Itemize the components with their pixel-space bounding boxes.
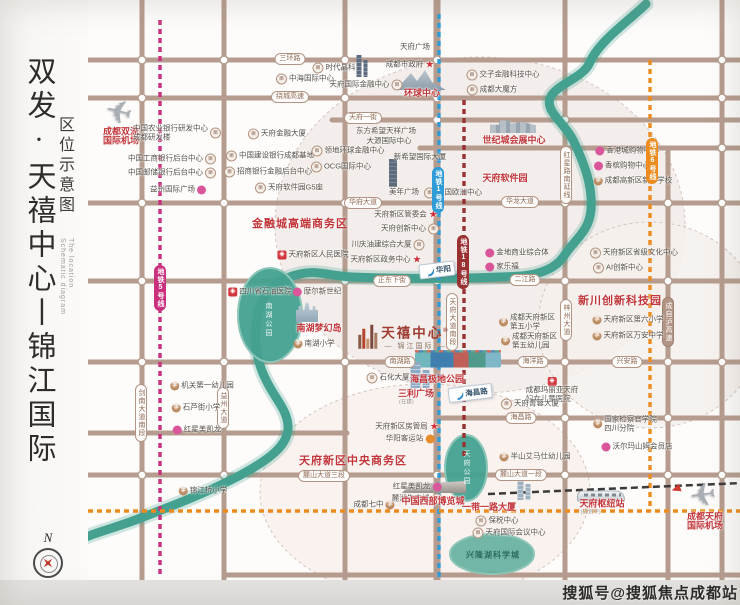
poi-text-line: 天府国际金融中心 bbox=[330, 81, 390, 90]
poi-text: 天府金融大厦 bbox=[261, 130, 306, 139]
compass-north-label: N bbox=[28, 530, 68, 546]
poi-label: ▦天府新区省级文化中心 bbox=[590, 248, 678, 259]
map-subtitle-en: The location Schematic diagram bbox=[58, 238, 74, 315]
school-icon: 学 bbox=[593, 316, 602, 325]
poi-text-line: 交子金融科技中心 bbox=[480, 71, 540, 80]
poi-text-line: 四川分院 bbox=[604, 424, 657, 433]
poi-text-line: 天府创新中心 bbox=[381, 225, 426, 234]
building-icon: ▦ bbox=[392, 80, 403, 91]
poi-text: 香槟购物中心 bbox=[605, 162, 650, 171]
poi-text: 成都七中 bbox=[354, 501, 384, 510]
building-icon: ▦ bbox=[210, 128, 221, 139]
poi-text: 华阳客运站 bbox=[386, 435, 424, 444]
poi-text: 一带一路大厦 bbox=[462, 503, 516, 512]
road-label: 海昌路 bbox=[506, 412, 537, 424]
poi-text-line: 一带一路大厦 bbox=[462, 503, 516, 512]
poi-text: OCG国际中心 bbox=[324, 163, 371, 172]
poi-text: 成都天府新区第五小学 bbox=[510, 314, 555, 331]
poi-text-line: 华阳客运站 bbox=[386, 435, 424, 444]
poi-label: 学成都高新区新华学校 bbox=[594, 177, 673, 186]
poi-text: 天府软件园G5座 bbox=[268, 184, 323, 193]
poi-text: 天府枢纽站(规划中) bbox=[579, 500, 624, 517]
poi-text: 天府国际金融中心 bbox=[330, 81, 390, 90]
poi-label: 天府新区政务中心★ bbox=[351, 256, 422, 265]
poi-text: 天府国际会议中心 bbox=[486, 529, 546, 538]
poi-text: 成都市政府 bbox=[386, 61, 424, 70]
poi-text-line: 国际机场 bbox=[687, 521, 723, 530]
park-label: 兴隆湖科学城 bbox=[466, 550, 520, 561]
logo-bar bbox=[370, 325, 373, 349]
poi-text-line: 第五小学 bbox=[510, 322, 555, 331]
logo-title: 天禧中心® bbox=[381, 324, 449, 341]
building-icon: ▦ bbox=[367, 373, 378, 384]
road-label: 南湖路 bbox=[385, 356, 416, 368]
poi-text: 石化大厦 bbox=[380, 374, 410, 383]
school-icon: 学 bbox=[593, 420, 602, 429]
poi-label: 成都天府国际机场 bbox=[687, 513, 723, 530]
poi-label: 天府新区管委会★ bbox=[374, 211, 437, 220]
metro-line-label: 地铁18号线 bbox=[457, 235, 469, 289]
school-icon: 学 bbox=[593, 332, 602, 341]
poi-label: ▦保税中心 bbox=[476, 516, 519, 527]
poi-text-line: 锦江桥小学 bbox=[190, 487, 228, 496]
poi-text: 中国工商银行后台中心 bbox=[128, 155, 203, 164]
poi-text-line: 天府新区第六小学 bbox=[604, 316, 664, 325]
poi-label: 川庆油建综合大厦▦ bbox=[352, 240, 425, 251]
station-name: 华阳 bbox=[435, 263, 451, 276]
shopping-icon bbox=[173, 426, 182, 435]
poi-text: 保税中心 bbox=[489, 517, 519, 526]
poi-text: 红星美凯龙 bbox=[184, 426, 222, 435]
poi-text: 天府新区房管局 bbox=[375, 423, 428, 432]
poi-label: ▦AI创新中心 bbox=[593, 263, 643, 274]
shopping-icon bbox=[293, 288, 302, 297]
school-icon: 学 bbox=[499, 318, 508, 327]
poi-text-line: 益州国际广场 bbox=[150, 186, 195, 195]
building-icon: ▦ bbox=[205, 154, 216, 165]
metro-station-sign: 海昌路 bbox=[447, 383, 492, 403]
poi-text: 天府新区省级文化中心 bbox=[603, 249, 678, 258]
road-label: 麓山大道三段 bbox=[298, 470, 350, 482]
building-icon: ▦ bbox=[473, 528, 484, 539]
poi-text-line: 成都七中 bbox=[354, 501, 384, 510]
poi-note: (规划中) bbox=[580, 508, 624, 517]
road-label: 兴安路 bbox=[612, 356, 643, 368]
school-icon: 学 bbox=[179, 487, 188, 496]
poi-text: 成都天府国际机场 bbox=[687, 513, 723, 530]
towers2-icon bbox=[517, 478, 532, 500]
poi-label: 红星美凯龙 bbox=[393, 483, 442, 492]
shopping-icon bbox=[602, 443, 611, 452]
tower-shape bbox=[364, 60, 368, 77]
towers-icon bbox=[356, 55, 369, 77]
poi-text-line: 时代晶科 bbox=[326, 64, 356, 73]
building-icon: ▦ bbox=[414, 240, 425, 251]
road-label: 成自泸高速 bbox=[662, 297, 674, 347]
map-label-layer: 三环路绕城高速天府一街华府大道华龙大道正东下街二江路南湖路海洋路兴安路海昌路麓山… bbox=[0, 0, 740, 580]
poi-text-line: 成都市政府 bbox=[386, 61, 424, 70]
hospital-icon: + bbox=[228, 288, 237, 297]
poi-label: +四川省石油医院 bbox=[228, 288, 292, 297]
building-icon: ▦ bbox=[467, 70, 478, 81]
poi-label: 红星美凯龙 bbox=[173, 426, 222, 435]
poi-text: AI创新中心 bbox=[606, 264, 643, 273]
school-icon: 学 bbox=[386, 501, 395, 510]
road-label: 梓州大道 bbox=[560, 299, 572, 341]
aquarium-icon bbox=[415, 353, 501, 368]
poi-text-line: 天府国际会议中心 bbox=[486, 529, 546, 538]
poi-text: 锦江桥小学 bbox=[190, 487, 228, 496]
poi-text-line: 半山艾马仕幼儿园 bbox=[511, 453, 571, 462]
wave-icon bbox=[450, 387, 466, 403]
metro-line-label: 地铁1号线 bbox=[432, 167, 444, 213]
building-icon: ▦ bbox=[226, 151, 237, 162]
poi-label: ▦时代晶科 bbox=[313, 63, 356, 74]
poi-label: 中国农业银行研发中心成都研发楼▦ bbox=[133, 125, 221, 142]
building-icon: ▦ bbox=[255, 183, 266, 194]
poi-label: 金地商业综合体 bbox=[485, 249, 549, 258]
poi-label: 东方希望天祥广场 bbox=[356, 127, 416, 136]
poi-label: 三利广场(在建) bbox=[398, 390, 434, 407]
bus-icon bbox=[425, 435, 434, 444]
road-label: 红星路南延线 bbox=[560, 146, 572, 204]
poi-label: ▦天府国际会议中心 bbox=[473, 528, 546, 539]
poi-label: 中国西部博览城 bbox=[401, 497, 464, 506]
cluster-icon bbox=[490, 119, 536, 133]
building-icon: ▦ bbox=[312, 146, 323, 157]
poi-text-line: 天府金融大厦 bbox=[261, 130, 306, 139]
shopping-icon bbox=[485, 263, 494, 272]
poi-text: 摩尔新世纪 bbox=[304, 288, 342, 297]
watermark-bar: 搜狐号@搜狐焦点成都站 bbox=[0, 580, 740, 605]
poi-text: 天府菁蓉大厦 bbox=[514, 400, 559, 409]
poi-label: 家乐福 bbox=[485, 263, 519, 272]
poi-text: 天府新区万安中学 bbox=[604, 332, 664, 341]
poi-label: 成都七中学 bbox=[354, 501, 395, 510]
road-label: 正东下街 bbox=[373, 275, 411, 287]
poi-text: 环球中心 bbox=[404, 89, 440, 98]
poi-text: 大源国际中心 bbox=[367, 137, 412, 146]
poi-label: 天府广场 bbox=[400, 43, 430, 52]
logo-bar bbox=[358, 335, 361, 349]
location-map-page: 三环路绕城高速天府一街华府大道华龙大道正东下街二江路南湖路海洋路兴安路海昌路麓山… bbox=[0, 0, 740, 605]
poi-text-line: 天府新区管委会 bbox=[374, 211, 427, 220]
poi-text-line: 红星美凯龙 bbox=[184, 426, 222, 435]
map-subtitle: 区位示意图 bbox=[52, 116, 76, 216]
poi-label: ▦天府软件园G5座 bbox=[255, 183, 323, 194]
poi-text: 石芦街小学 bbox=[183, 404, 221, 413]
road-label: 绕城高速 bbox=[271, 91, 309, 103]
shopping-icon bbox=[197, 186, 206, 195]
compass-icon bbox=[33, 548, 63, 578]
poi-label: ▦交子金融科技中心 bbox=[467, 70, 540, 81]
poi-label: 沃尔玛山姆会员店 bbox=[602, 443, 673, 452]
poi-text-line: OCG国际中心 bbox=[324, 163, 371, 172]
poi-text: 天府软件园 bbox=[482, 174, 527, 183]
school-icon: 学 bbox=[170, 382, 179, 391]
poi-label: ▦成都大魔方 bbox=[467, 85, 518, 96]
district-label: 天府新区中央商务区 bbox=[299, 452, 407, 468]
metro-station-sign: 华阳 bbox=[418, 260, 456, 279]
poi-text: 中海国际中心 bbox=[289, 75, 334, 84]
poi-text: 领地环球金融中心 bbox=[325, 147, 385, 156]
building-icon: ▦ bbox=[276, 74, 287, 85]
castle-icon bbox=[296, 300, 318, 322]
poi-text-line: 美年广场 bbox=[389, 188, 419, 197]
poi-label: 学石芦街小学 bbox=[172, 404, 221, 413]
poi-text-line: 四川省石油医院 bbox=[239, 288, 292, 297]
map-area: 三环路绕城高速天府一街华府大道华龙大道正东下街二江路南湖路海洋路兴安路海昌路麓山… bbox=[0, 0, 740, 580]
poi-text: 沃尔玛山姆会员店 bbox=[613, 443, 673, 452]
road-label: 三环路 bbox=[275, 53, 306, 65]
poi-text-line: 川庆油建综合大厦 bbox=[352, 241, 412, 250]
poi-text: 世纪城会展中心 bbox=[482, 136, 545, 145]
district-label: 金融城高端商务区 bbox=[252, 215, 348, 231]
poi-text-line: 成都研发楼 bbox=[133, 133, 208, 142]
district-label: 新川创新科技园 bbox=[578, 292, 662, 308]
poi-text-line: 中国工商银行后台中心 bbox=[128, 155, 203, 164]
logo-bar bbox=[362, 329, 365, 349]
poi-text-line: 石芦街小学 bbox=[183, 404, 221, 413]
project-logo: 天禧中心®— 锦江国际 — bbox=[358, 324, 449, 351]
shopping-icon bbox=[485, 249, 494, 258]
school-icon: 学 bbox=[594, 177, 603, 186]
poi-text-line: 香槟购物中心 bbox=[605, 162, 650, 171]
shopping-icon bbox=[595, 147, 604, 156]
building-icon: ▦ bbox=[501, 399, 512, 410]
poi-text-line: 石化大厦 bbox=[380, 374, 410, 383]
poi-text-line: 成都高新区新华学校 bbox=[605, 177, 673, 186]
poi-label: 学半山艾马仕幼儿园 bbox=[500, 453, 571, 462]
poi-text-line: 天府枢纽站 bbox=[579, 500, 624, 509]
poi-label: 学机关第一幼儿园 bbox=[170, 382, 234, 391]
logo-bar bbox=[374, 333, 377, 349]
poi-label: 天府国际金融中心▦ bbox=[330, 80, 403, 91]
plane-icon: ✈ bbox=[687, 474, 719, 515]
poi-text-line: 世纪城会展中心 bbox=[482, 136, 545, 145]
poi-text: 海昌极地公园 bbox=[410, 375, 464, 384]
shopping-icon bbox=[432, 483, 441, 492]
poi-label: 天府创新中心▦ bbox=[381, 224, 439, 235]
school-icon: 学 bbox=[172, 404, 181, 413]
logo-bar bbox=[366, 339, 369, 349]
poi-text-line: 三利广场 bbox=[398, 390, 434, 399]
poi-text-line: 中海国际中心 bbox=[289, 75, 334, 84]
poi-label: ▦天府金融大厦 bbox=[248, 129, 306, 140]
poi-text: 成都大魔方 bbox=[480, 86, 518, 95]
road-label: 华龙大道 bbox=[501, 196, 539, 208]
logo-subtitle: — 锦江国际 — bbox=[381, 340, 449, 350]
poi-text-line: 领地环球金融中心 bbox=[325, 147, 385, 156]
poi-text-line: 机关第一幼儿园 bbox=[181, 382, 234, 391]
poi-label: 益州国际广场 bbox=[150, 186, 206, 195]
poi-text: 交子金融科技中心 bbox=[480, 71, 540, 80]
poi-label: 学天府新区万安中学 bbox=[593, 332, 664, 341]
poi-label: 天府软件园 bbox=[482, 174, 527, 183]
building-icon: ▦ bbox=[593, 263, 604, 274]
watermark: 搜狐号@搜狐焦点成都站 bbox=[562, 582, 738, 603]
school-icon: 学 bbox=[501, 337, 510, 346]
building-icon: ▦ bbox=[224, 167, 235, 178]
school-icon: 学 bbox=[500, 453, 509, 462]
school-icon: 学 bbox=[294, 340, 303, 349]
tower-icon bbox=[389, 159, 397, 187]
poi-label: 天府枢纽站(规划中) bbox=[579, 500, 624, 517]
poi-label: 学天府新区第六小学 bbox=[593, 316, 664, 325]
park-label: 天府公园 bbox=[461, 450, 471, 486]
poi-label: ▦中国建设银行成都基地 bbox=[226, 151, 314, 162]
registered-mark: ® bbox=[443, 328, 449, 334]
road-label: 天府一街 bbox=[344, 112, 382, 124]
poi-text: 天府新区人民医院 bbox=[289, 251, 349, 260]
poi-label: 美年广场 bbox=[389, 188, 419, 197]
poi-label: 中国工商银行后台中心▦ bbox=[128, 154, 216, 165]
poi-label: 中国邮储银行后台中心▦ bbox=[128, 168, 216, 179]
poi-label: ▦石化大厦 bbox=[367, 373, 410, 384]
poi-label: 一带一路大厦 bbox=[462, 503, 516, 512]
logo-text: 天禧中心®— 锦江国际 — bbox=[381, 324, 449, 351]
hospital-icon: + bbox=[278, 251, 287, 260]
building-icon: ▦ bbox=[311, 162, 322, 173]
building-icon: ▦ bbox=[590, 248, 601, 259]
poi-label: 学成都天府新区第五幼儿园 bbox=[501, 333, 557, 350]
poi-label: 世纪城会展中心 bbox=[482, 136, 545, 145]
poi-text: 成都高新区新华学校 bbox=[605, 177, 673, 186]
poi-label: ▦天府菁蓉大厦 bbox=[501, 399, 559, 410]
poi-text: 国家检察官学院四川分院 bbox=[604, 416, 657, 433]
poi-text: 益州国际广场 bbox=[150, 186, 195, 195]
gov-star-icon: ★ bbox=[425, 61, 434, 70]
metro-line-label: 地铁6号线 bbox=[646, 138, 658, 184]
logo-buildings-icon bbox=[358, 325, 377, 349]
poi-text: 招商银行金融后台中心 bbox=[237, 168, 312, 177]
poi-text-line: 天府菁蓉大厦 bbox=[514, 400, 559, 409]
poi-label: 南湖梦幻岛 bbox=[296, 324, 341, 333]
tower-shape bbox=[518, 478, 524, 500]
poi-text-line: 南湖梦幻岛 bbox=[296, 324, 341, 333]
poi-text-line: 天府软件园 bbox=[482, 174, 527, 183]
poi-text-line: 金地商业综合体 bbox=[496, 249, 549, 258]
poi-label: 天府新区房管局★ bbox=[375, 423, 438, 432]
poi-text: 天府新区第六小学 bbox=[604, 316, 664, 325]
poi-text-line: 第五幼儿园 bbox=[512, 341, 557, 350]
poi-text: 四川省石油医院 bbox=[239, 288, 292, 297]
poi-text: 天府新区管委会 bbox=[374, 211, 427, 220]
poi-text: 东方希望天祥广场 bbox=[356, 127, 416, 136]
compass: N bbox=[28, 530, 68, 578]
poi-label: +天府新区人民医院 bbox=[278, 251, 349, 260]
poi-text-line: 中国建设银行成都基地 bbox=[239, 152, 314, 161]
tower-shape bbox=[526, 484, 531, 500]
poi-text-line: 大源国际中心 bbox=[367, 137, 412, 146]
poi-text-line: 天府新区省级文化中心 bbox=[603, 249, 678, 258]
poi-text-line: 天府新区房管局 bbox=[375, 423, 428, 432]
poi-label: ▦领地环球金融中心 bbox=[312, 146, 385, 157]
poi-text: 成都天府新区第五幼儿园 bbox=[512, 333, 557, 350]
poi-label: ▦中海国际中心 bbox=[276, 74, 334, 85]
poi-text: 半山艾马仕幼儿园 bbox=[511, 453, 571, 462]
poi-label: 新希望国际大厦 bbox=[394, 153, 447, 162]
building-icon: ▦ bbox=[205, 168, 216, 179]
poi-text-line: 家乐福 bbox=[496, 263, 519, 272]
road-label: 华府大道 bbox=[344, 197, 382, 209]
gov-star-icon: ★ bbox=[430, 423, 439, 432]
poi-text: 天府创新中心 bbox=[381, 225, 426, 234]
wave-icon bbox=[421, 263, 437, 279]
poi-text-line: 天府新区政务中心 bbox=[351, 256, 411, 265]
poi-text: 三利广场(在建) bbox=[398, 390, 434, 407]
gov-star-icon: ★ bbox=[413, 256, 422, 265]
poi-label: ▦OCG国际中心 bbox=[311, 162, 371, 173]
poi-text: 机关第一幼儿园 bbox=[181, 382, 234, 391]
poi-text-line: 中国邮储银行后台中心 bbox=[128, 169, 203, 178]
building-icon: ▦ bbox=[313, 63, 324, 74]
poi-text-line: 天府新区万安中学 bbox=[604, 332, 664, 341]
title-sidebar: 双发·天禧中心丨锦江国际 区位示意图 The location Schemati… bbox=[0, 0, 88, 580]
poi-text-line: 环球中心 bbox=[404, 89, 440, 98]
poi-text: 中国西部博览城 bbox=[401, 497, 464, 506]
poi-label: 成都市政府★ bbox=[386, 61, 434, 70]
poi-label: 学锦江桥小学 bbox=[179, 487, 228, 496]
building-icon: ▦ bbox=[248, 129, 259, 140]
road-label: 二江路 bbox=[510, 274, 541, 286]
road-label: 麓山大道一段 bbox=[495, 469, 547, 481]
building-icon: ▦ bbox=[428, 224, 439, 235]
poi-label: 大源国际中心 bbox=[367, 137, 412, 146]
poi-text: 中国建设银行成都基地 bbox=[239, 152, 314, 161]
poi-text-line: 摩尔新世纪 bbox=[304, 288, 342, 297]
poi-label: 海昌极地公园 bbox=[410, 375, 464, 384]
poi-label: 学南湖小学 bbox=[294, 340, 335, 349]
station-name: 海昌路 bbox=[465, 385, 489, 399]
poi-text: 天府广场 bbox=[400, 43, 430, 52]
building-icon: ▦ bbox=[476, 516, 487, 527]
poi-text: 新希望国际大厦 bbox=[394, 153, 447, 162]
poi-text-line: 东方希望天祥广场 bbox=[356, 127, 416, 136]
poi-text-line: 中国西部博览城 bbox=[401, 497, 464, 506]
poi-text: 天府新区政务中心 bbox=[351, 256, 411, 265]
poi-text: 时代晶科 bbox=[326, 64, 356, 73]
poi-text: 南湖梦幻岛 bbox=[296, 324, 341, 333]
metro-line-label: 地铁5号线 bbox=[154, 265, 166, 311]
poi-text-line: 天府新区人民医院 bbox=[289, 251, 349, 260]
poi-text-line: AI创新中心 bbox=[606, 264, 643, 273]
poi-text-line: 天府广场 bbox=[400, 43, 430, 52]
building-icon: ▦ bbox=[467, 85, 478, 96]
poi-text: 川庆油建综合大厦 bbox=[352, 241, 412, 250]
poi-text-line: 海昌极地公园 bbox=[410, 375, 464, 384]
tower-shape bbox=[357, 55, 362, 77]
poi-text: 红星美凯龙 bbox=[393, 483, 431, 492]
park-label: 南湖公园 bbox=[263, 302, 273, 338]
poi-text-line: 天府软件园G5座 bbox=[268, 184, 323, 193]
shopping-icon bbox=[594, 162, 603, 171]
poi-label: 摩尔新世纪 bbox=[293, 288, 342, 297]
road-label: 剑南大道南段 bbox=[135, 384, 147, 442]
poi-text: 金地商业综合体 bbox=[496, 249, 549, 258]
poi-text-line: 成都大魔方 bbox=[480, 86, 518, 95]
poi-text-line: 新希望国际大厦 bbox=[394, 153, 447, 162]
poi-text-line: 红星美凯龙 bbox=[393, 483, 431, 492]
poi-label: 华阳客运站 bbox=[386, 435, 435, 444]
poi-label: 环球中心 bbox=[404, 89, 440, 98]
arrow-icon bbox=[670, 484, 681, 495]
poi-text-line: 保税中心 bbox=[489, 517, 519, 526]
poi-text: 南湖小学 bbox=[305, 340, 335, 349]
poi-text-line: 招商银行金融后台中心 bbox=[237, 168, 312, 177]
poi-label: ▦招商银行金融后台中心 bbox=[224, 167, 312, 178]
poi-text: 中国邮储银行后台中心 bbox=[128, 169, 203, 178]
